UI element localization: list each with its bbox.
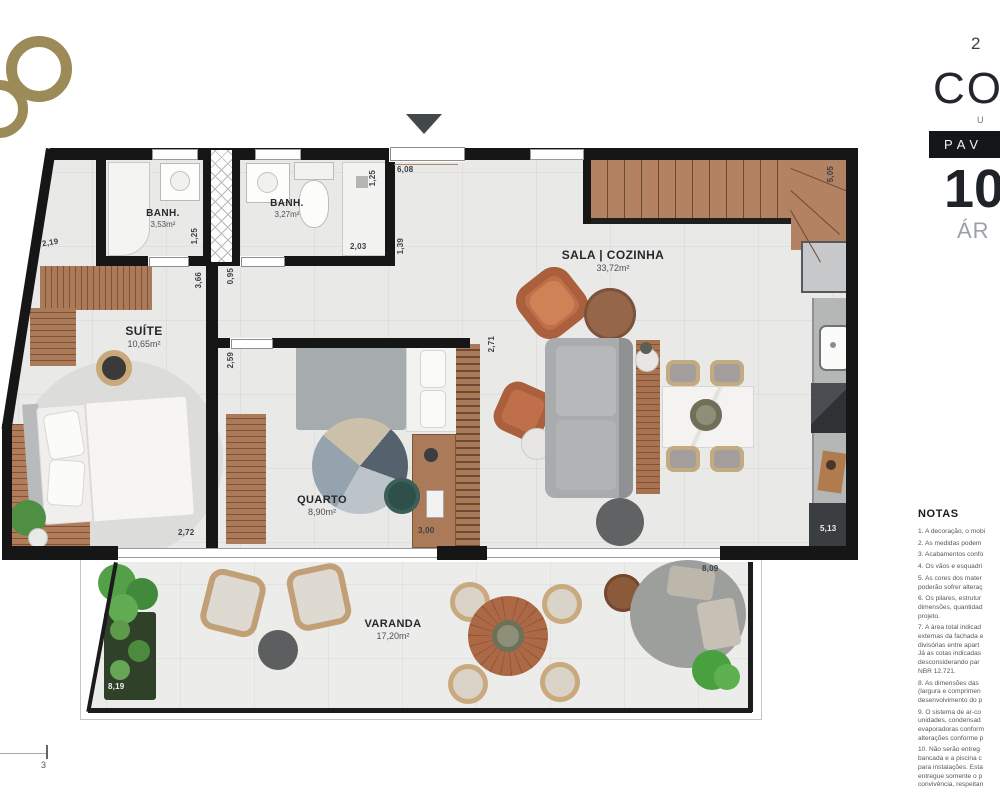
dim-2-71: 2,71 (487, 336, 496, 352)
room-label-suite: SUÍTE 10,65m² (94, 324, 194, 349)
wall-suite-quarto (206, 256, 218, 548)
planter-leaf-2 (128, 640, 150, 662)
window-banh2 (255, 149, 301, 160)
dim-3-00: 3,00 (418, 526, 434, 535)
dim-3-66: 3,66 (194, 272, 203, 288)
coffee-table (584, 288, 636, 340)
sliding-door-suite (118, 548, 437, 558)
sofa-backrest (619, 338, 633, 498)
dining-chair-3 (666, 446, 700, 472)
room-label-banh1: BANH. 3,53m² (118, 208, 208, 229)
quarto-desk-device (426, 490, 444, 518)
sala-area: 33,72m² (538, 263, 688, 273)
door-leaf-suite (149, 257, 189, 267)
daybed-cushion-2 (696, 597, 742, 651)
quarto-bed-duvet (296, 346, 406, 430)
banh2-name: BANH. (242, 198, 332, 209)
suite-wardrobe-top (40, 266, 152, 310)
wall-stair-stub (583, 148, 591, 224)
suite-plant-pot (28, 528, 48, 548)
room-label-quarto: QUARTO 8,90m² (272, 494, 372, 517)
parapet-bottom (88, 708, 752, 713)
quarto-pillow-1 (420, 350, 446, 388)
wall-left-lower (2, 424, 12, 560)
floorplan-page: BANH. 3,53m² BANH. 3,27m² SUÍTE 10,65m² … (0, 0, 1000, 800)
window-sala (530, 149, 584, 160)
wall-banh1-left (96, 150, 106, 266)
varanda-ottoman (258, 630, 298, 670)
suite-duvet (84, 397, 194, 522)
sala-round-rug (596, 498, 644, 546)
notas-title: NOTAS (918, 508, 959, 520)
wall-banh2-right (385, 150, 395, 266)
shaft-hatch (211, 150, 232, 262)
panel-subtitle: U (977, 115, 984, 125)
fridge (801, 241, 851, 293)
entry-arrow-icon (406, 114, 442, 134)
panel-big-number: 10 (944, 158, 1000, 220)
door-leaf-quarto (231, 339, 273, 349)
varanda-area: 17,20m² (348, 631, 438, 641)
suite-name: SUÍTE (94, 324, 194, 338)
board-item (826, 460, 836, 470)
parapet-right (748, 562, 753, 712)
scale-line (0, 753, 48, 754)
scale-tick (46, 745, 48, 759)
varanda-chair-4 (540, 662, 580, 702)
banh2-area: 3,27m² (242, 210, 332, 219)
scale-label: 3 (41, 760, 46, 770)
wall-shaft-right (232, 150, 240, 266)
dim-1-25-b: 1,25 (368, 170, 377, 186)
stairs-flight (591, 150, 791, 222)
suite-pillow-1 (42, 409, 85, 461)
drain-banh2 (356, 176, 368, 188)
wall-bottom-right (720, 546, 858, 560)
suite-round-rug-small (96, 350, 132, 386)
wall-right (846, 148, 858, 560)
console-plant (640, 342, 652, 354)
dining-centerpiece (690, 399, 722, 431)
panel-unit-number: 2 (971, 34, 980, 54)
notas-list: 1. A decoração, o mobi2. As medidas pode… (918, 528, 1000, 790)
dim-5-05: 5,05 (826, 166, 835, 182)
dim-2-59: 2,59 (226, 352, 235, 368)
room-label-varanda: VARANDA 17,20m² (348, 618, 438, 641)
varanda-chair-3 (448, 664, 488, 704)
sliding-door-sala (487, 548, 720, 558)
dim-1-39: 1,39 (396, 238, 405, 254)
quarto-pillow-2 (420, 390, 446, 428)
quarto-desk-lamp (424, 448, 438, 462)
quarto-name: QUARTO (272, 494, 372, 506)
quarto-wardrobe (226, 414, 266, 544)
door-leaf-banh2 (241, 257, 285, 267)
dim-5-13: 5,13 (820, 524, 836, 533)
wall-bottom-mid (437, 546, 487, 560)
varanda-chair-2 (542, 584, 582, 624)
dim-6-08: 6,08 (397, 165, 413, 174)
dim-0-95: 0,95 (226, 268, 235, 284)
dining-chair-1 (666, 360, 700, 386)
dim-8-19: 8,19 (108, 682, 124, 691)
slat-divider (456, 344, 480, 548)
stairs-winder (791, 150, 846, 250)
room-label-banh2: BANH. 3,27m² (242, 198, 332, 219)
suite-area: 10,65m² (94, 339, 194, 349)
sink-drain (830, 342, 836, 348)
quarto-area: 8,90m² (272, 507, 372, 517)
dim-2-72: 2,72 (178, 528, 194, 537)
sofa-cushion-1 (556, 346, 616, 416)
room-label-sala: SALA | COZINHA 33,72m² (538, 248, 688, 273)
dim-2-03: 2,03 (350, 242, 366, 251)
panel-area-label: ÁR (957, 218, 990, 244)
varanda-name: VARANDA (348, 618, 438, 630)
varanda-plant-b2 (714, 664, 740, 690)
entry-door-leaf (390, 147, 465, 161)
quarto-chair (384, 478, 420, 514)
window-banh1 (152, 149, 198, 160)
sala-name: SALA | COZINHA (538, 248, 688, 262)
panel-banner: PAV (929, 131, 1000, 158)
suite-pillow-2 (46, 459, 85, 507)
varanda-table-centerpiece (492, 620, 524, 652)
sink-basin-banh1 (170, 171, 190, 191)
wall-bottom-left (2, 546, 118, 560)
toilet-tank-banh2 (294, 162, 334, 180)
stairs-edge (591, 218, 791, 224)
dim-8-09: 8,09 (702, 564, 718, 573)
planter-leaf-1 (110, 620, 130, 640)
dining-chair-4 (710, 446, 744, 472)
suite-wardrobe-side (30, 308, 76, 366)
dim-1-25-a: 1,25 (190, 228, 199, 244)
sofa-cushion-2 (556, 420, 616, 490)
panel-title: COB (933, 64, 1000, 114)
sink-basin-banh2 (257, 172, 278, 193)
dining-chair-2 (710, 360, 744, 386)
planter-leaf-3 (110, 660, 130, 680)
banh1-name: BANH. (118, 208, 208, 219)
